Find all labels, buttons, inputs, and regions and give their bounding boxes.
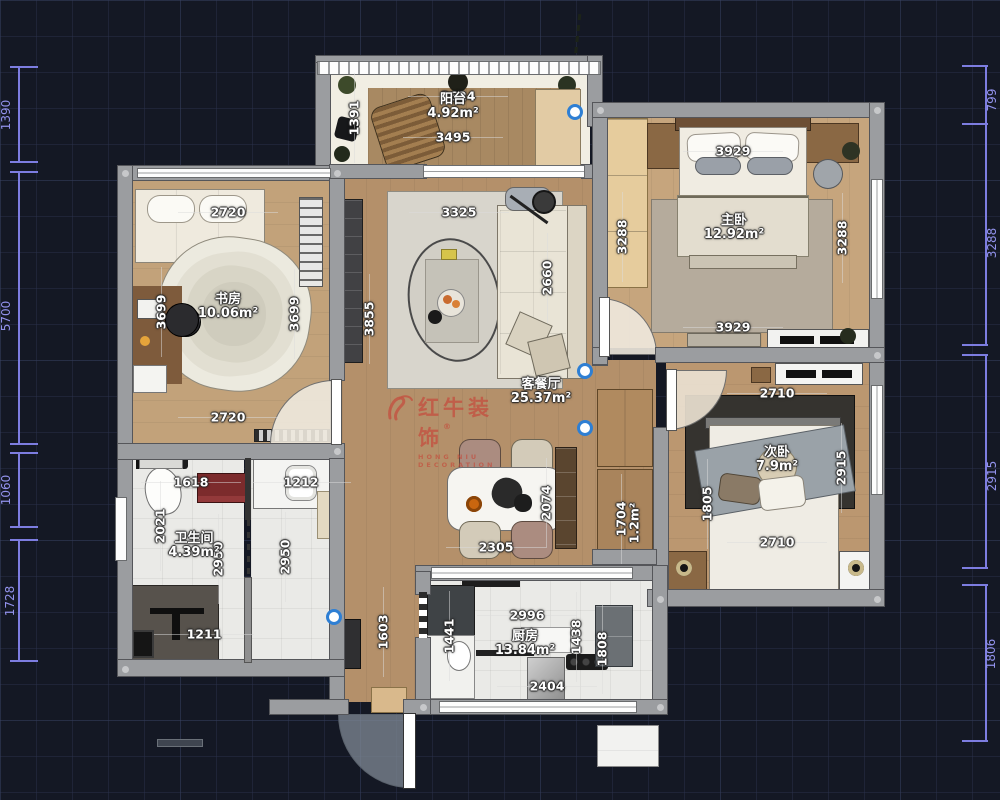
balcony-cabinet [536,90,580,168]
bench [688,334,760,346]
kitchen-window [440,702,636,712]
wall-post [122,666,129,673]
dimension-label: 2720 [211,410,246,425]
dimension-label: 1603 [376,615,391,650]
selection-grip[interactable] [326,609,342,625]
floor-drain [132,630,154,658]
tv-console [344,200,362,362]
pillow [758,475,805,510]
study-window [138,169,330,177]
master-door-leaf [600,298,609,356]
vanity-stool [814,160,842,188]
shoe-cabinet [344,620,360,668]
bowl [428,310,442,324]
plant-icon [334,146,350,162]
lamp [676,560,692,576]
fruit [452,300,460,308]
threshold [372,688,406,712]
dimension-label: 2404 [530,679,565,694]
master-window [872,180,882,298]
dimension-label: 3929 [716,144,751,159]
edge-dimension-label: 1728 [3,586,17,617]
wall [656,348,884,362]
wardrobe [607,119,647,287]
pillow [718,473,761,504]
dimension-label: 2720 [211,205,246,220]
dim-line [18,453,20,528]
plan-shape: 红牛装饰® HONG NIU DECORATION [418,392,516,469]
room-label: 厨房13.84m² [495,630,555,658]
wall [330,165,426,178]
room-label: 阳台4.92m² [427,93,478,121]
dimension-label: 3288 [615,220,630,255]
room-label: 客餐厅25.37m² [511,378,571,406]
dim-tick [962,354,988,356]
bed-bench [690,256,796,268]
room-name: 书房 [198,293,258,307]
accent-pillow [696,158,740,174]
wall [316,58,330,176]
room-name: 客餐厅 [511,378,571,392]
fruit [443,295,452,304]
dimension-label: 1212 [284,475,319,490]
dimension-label: 3699 [287,297,302,332]
dim-tick [10,660,38,662]
dimension-label: 3929 [716,320,751,335]
ac-platform [598,726,658,766]
room-name: 阳台 [427,93,478,107]
room-label: 次卧7.9m² [756,446,798,474]
selection-grip[interactable] [567,104,583,120]
fruit-bowl [466,496,482,512]
dimension-label: 2074 [539,486,554,521]
dimension-label: 3699 [154,295,169,330]
dim-tick [962,344,988,346]
edge-dimension-label: 2915 [985,461,999,492]
dimension-label: 2915 [834,451,849,486]
room-label: 主卧12.92m² [704,214,764,242]
bull-logo-icon [386,394,416,422]
kitchen-sliding-door [419,592,427,638]
sofa-back [568,206,586,378]
shower-head [172,614,180,640]
dimension-label: 2950 [278,540,293,575]
edge-dimension-label: 1060 [0,475,13,506]
cad-viewport[interactable]: 红牛装饰® HONG NIU DECORATION 36243495139127… [0,0,1000,800]
wall [653,566,667,714]
bedroom2-door-leaf [667,370,676,430]
balcony-window [318,62,600,74]
dimension-label: 1.2m² [627,503,642,544]
drawer-unit [134,366,166,392]
bath-sliding-door-track [247,520,250,578]
wall [648,590,884,606]
wall [118,444,344,459]
dimension-label: 3495 [436,130,471,145]
table-decor [514,494,532,512]
room-name: 次卧 [756,446,798,460]
scale-bar [158,740,202,746]
sideboard [556,448,576,548]
room-area: 12.92m² [704,228,764,242]
room-area: 4.92m² [427,107,478,121]
dim-tick [962,123,988,125]
dim-tick [10,66,38,68]
brand-watermark: 红牛装饰® HONG NIU DECORATION [386,392,516,469]
room-area: 25.37m² [511,392,571,406]
wall [330,166,344,380]
speaker-grill [786,370,816,378]
registered-mark: ® [443,422,451,431]
wall [118,166,132,676]
dim-line [18,67,20,163]
speaker-grill [822,370,852,378]
toilet-tank [140,458,182,468]
bedroom2-window [872,386,882,494]
wall-post [657,596,664,603]
wall-post [874,596,881,603]
wall [118,660,344,676]
selection-grip[interactable] [577,363,593,379]
edge-dimension-label: 799 [985,89,999,112]
desk-chair [166,304,198,336]
pillow [148,196,194,222]
stool [752,368,770,382]
fruit-plate [438,290,464,316]
dim-tick [10,171,38,173]
dim-tick [10,161,38,163]
dimension-label: 1441 [442,619,457,654]
room-name: 卫生间 [168,532,219,546]
wall [593,103,884,117]
bath-sliding-door [245,458,251,520]
dimension-label: 2660 [540,261,555,296]
dim-line [18,540,20,662]
dim-tick [962,584,988,586]
room-area: 10.06m² [198,307,258,321]
candle [442,250,456,259]
room-label: 卫生间4.39m² [168,532,219,560]
room-name: 主卧 [704,214,764,228]
accent-pillow [748,158,792,174]
plant-icon [842,142,860,160]
dim-tick [10,443,38,445]
lamp [848,560,864,576]
dimension-label: 3855 [362,302,377,337]
dim-line [18,172,20,445]
wall-post [420,704,427,711]
dim-tick [10,539,38,541]
speaker-grill [780,336,814,344]
room-area: 4.39m² [168,546,219,560]
hanging-vine [574,14,582,58]
wall-post [657,704,664,711]
brand-subtitle: HONG NIU DECORATION [418,453,516,469]
edge-dimension-label: 1806 [984,639,998,670]
dim-tick [962,567,988,569]
balcony-sliding-door [424,166,584,177]
wall-post [874,352,881,359]
dim-tick [962,65,988,67]
bath-partition [245,578,251,662]
room-area: 13.84m² [495,644,555,658]
entry-door-swing [338,714,410,788]
wall-post [122,170,129,177]
plant-icon [840,328,856,344]
dimension-label: 1808 [595,632,610,667]
entry-door-leaf [404,714,415,788]
wall-post [334,448,341,455]
kitchen-pass-window [432,568,632,578]
room-area: 7.9m² [756,460,798,474]
dimension-label: 1805 [700,487,715,522]
study-door-leaf [332,380,341,444]
dimension-label: 3325 [442,205,477,220]
floor-lamp [534,192,554,212]
dimension-label: 2710 [760,386,795,401]
wall [593,550,656,564]
bath-window [116,498,126,560]
dimension-label: 3288 [835,221,850,256]
desk-lamp [140,336,150,346]
selection-grip[interactable] [577,420,593,436]
dim-tick [10,452,38,454]
edge-dimension-label: 1390 [0,100,13,131]
dimension-label: 2021 [153,509,168,544]
dim-tick [962,740,988,742]
dimension-label: 1438 [569,620,584,655]
wall-post [874,107,881,114]
edge-dimension-label: 3288 [985,228,999,259]
closet-cabinet [598,390,652,466]
dimension-label: 1211 [187,627,222,642]
wall-post [597,107,604,114]
dimension-label: 2996 [510,608,545,623]
room-label: 书房10.06m² [198,293,258,321]
wall [416,572,430,594]
dimension-label: 1618 [174,475,209,490]
bookshelf [300,198,322,286]
dimension-label: 1391 [347,101,362,136]
wall-post [334,170,341,177]
brand-name: 红牛装饰 [418,396,493,450]
dimension-label: 2710 [760,535,795,550]
wall [270,700,348,714]
room-name: 厨房 [495,630,555,644]
edge-dimension-label: 5700 [0,301,13,332]
dimension-label: 2305 [479,540,514,555]
dim-tick [10,526,38,528]
